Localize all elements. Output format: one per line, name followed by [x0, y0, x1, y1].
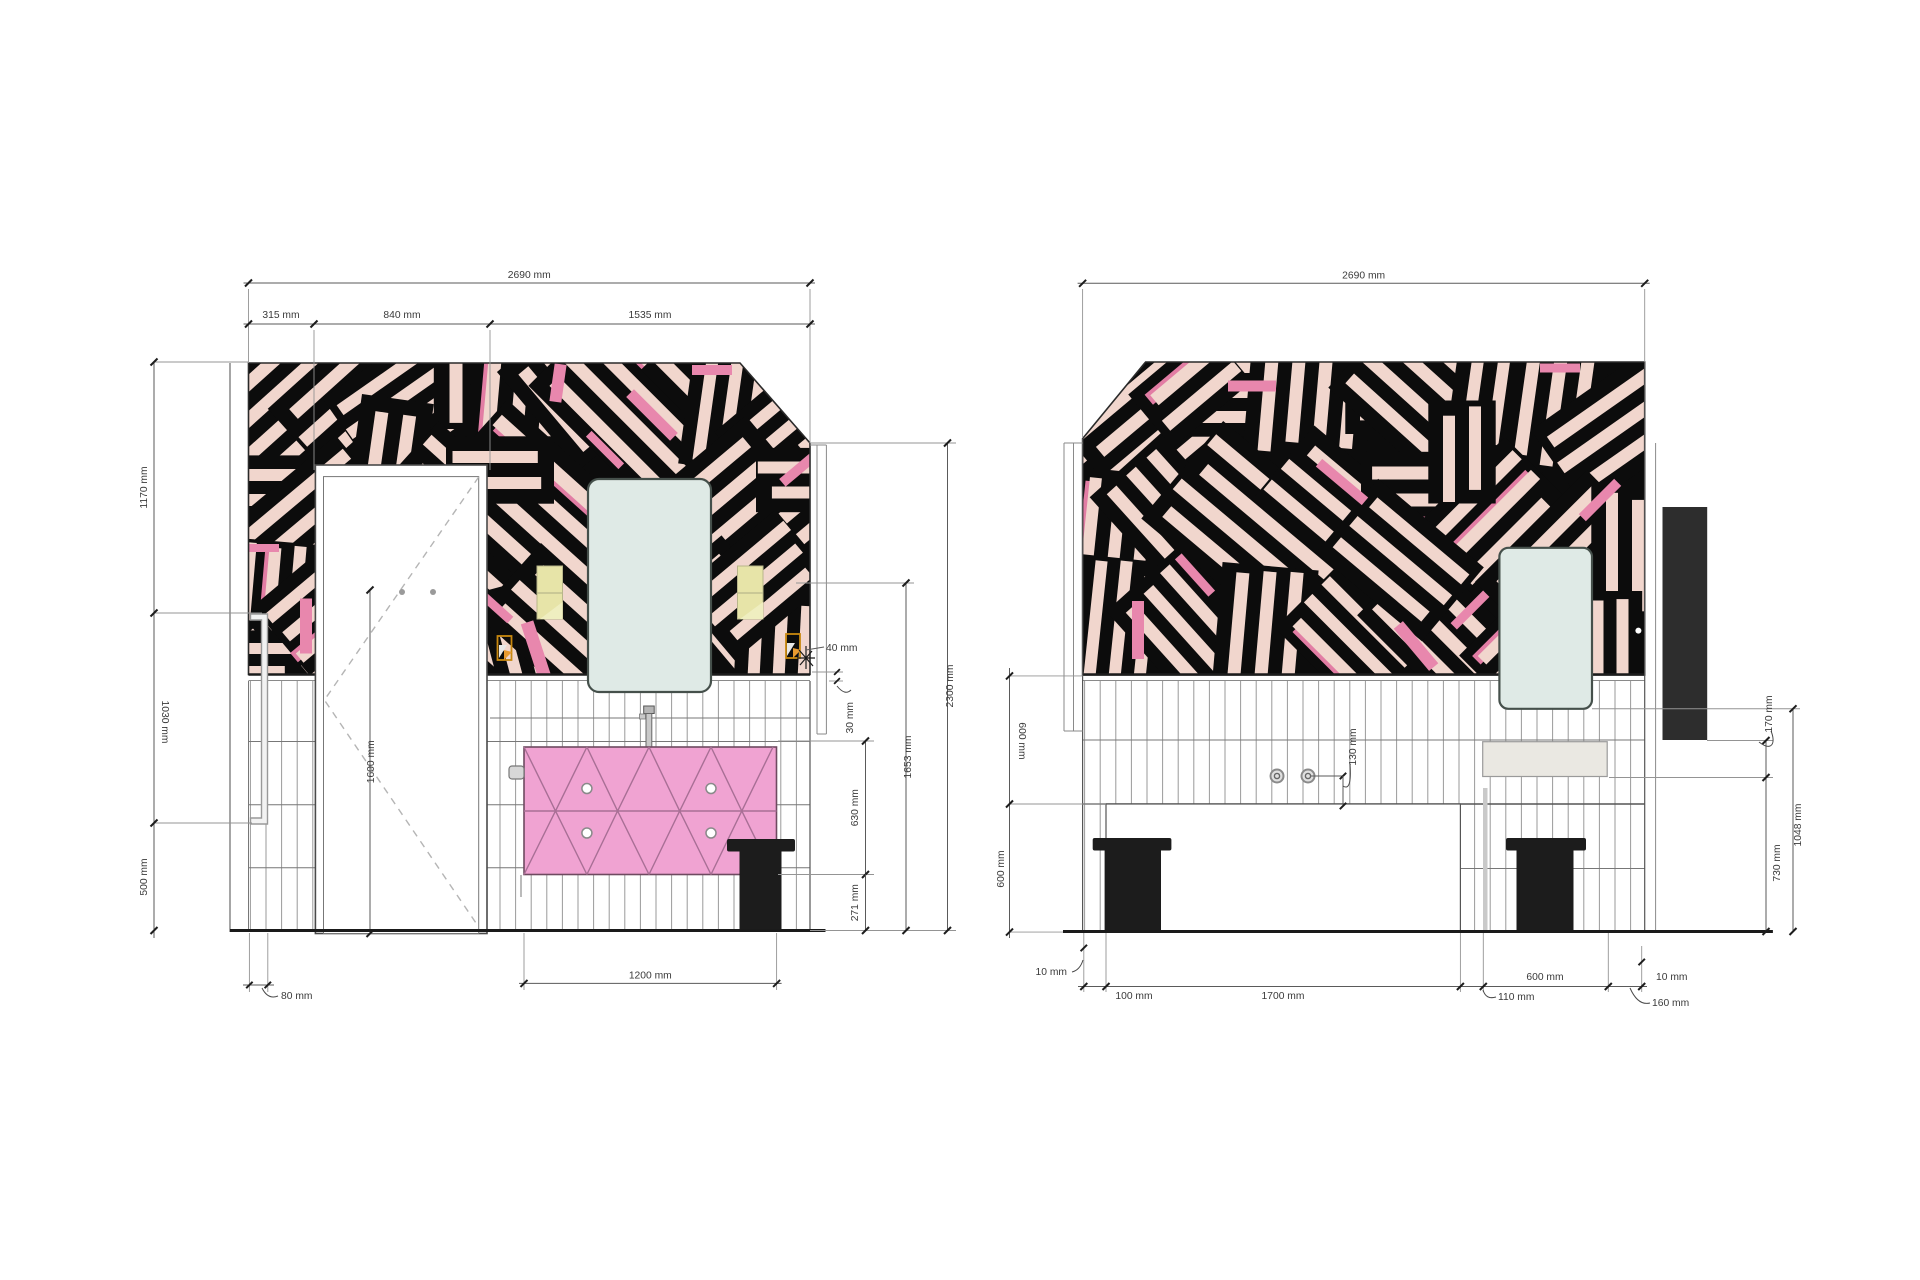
- svg-text:1600 mm: 1600 mm: [366, 740, 377, 783]
- svg-text:840 mm: 840 mm: [383, 310, 420, 321]
- svg-text:40 mm: 40 mm: [826, 643, 857, 654]
- svg-text:10 mm: 10 mm: [1036, 967, 1067, 978]
- svg-text:730 mm: 730 mm: [1772, 844, 1783, 881]
- svg-text:110 mm: 110 mm: [1498, 992, 1534, 1003]
- svg-text:1048 mm: 1048 mm: [1793, 804, 1804, 847]
- svg-text:1653 mm: 1653 mm: [903, 736, 914, 779]
- svg-text:1170 mm: 1170 mm: [139, 466, 150, 508]
- svg-text:600 mm: 600 mm: [1016, 722, 1027, 759]
- svg-text:130 mm: 130 mm: [1348, 728, 1359, 765]
- svg-text:271 mm: 271 mm: [850, 884, 861, 921]
- svg-text:1700 mm: 1700 mm: [1262, 991, 1305, 1002]
- svg-text:1535 mm: 1535 mm: [629, 310, 672, 321]
- svg-text:1200 mm: 1200 mm: [629, 970, 672, 981]
- svg-text:500 mm: 500 mm: [139, 858, 150, 895]
- svg-text:10 mm: 10 mm: [1656, 972, 1687, 983]
- svg-text:100 mm: 100 mm: [1115, 991, 1152, 1002]
- svg-text:2300 mm: 2300 mm: [945, 665, 956, 708]
- svg-text:2690 mm: 2690 mm: [508, 270, 551, 281]
- svg-text:1030 mm: 1030 mm: [159, 701, 170, 744]
- svg-text:170 mm: 170 mm: [1764, 695, 1775, 732]
- svg-text:600 mm: 600 mm: [1526, 972, 1563, 983]
- svg-text:30 mm: 30 mm: [845, 702, 856, 733]
- svg-text:630 mm: 630 mm: [850, 789, 861, 826]
- svg-text:160 mm: 160 mm: [1652, 998, 1689, 1009]
- svg-text:600 mm: 600 mm: [996, 850, 1007, 887]
- svg-text:2690 mm: 2690 mm: [1342, 270, 1385, 281]
- svg-text:315 mm: 315 mm: [262, 310, 299, 321]
- svg-text:80 mm: 80 mm: [281, 991, 312, 1002]
